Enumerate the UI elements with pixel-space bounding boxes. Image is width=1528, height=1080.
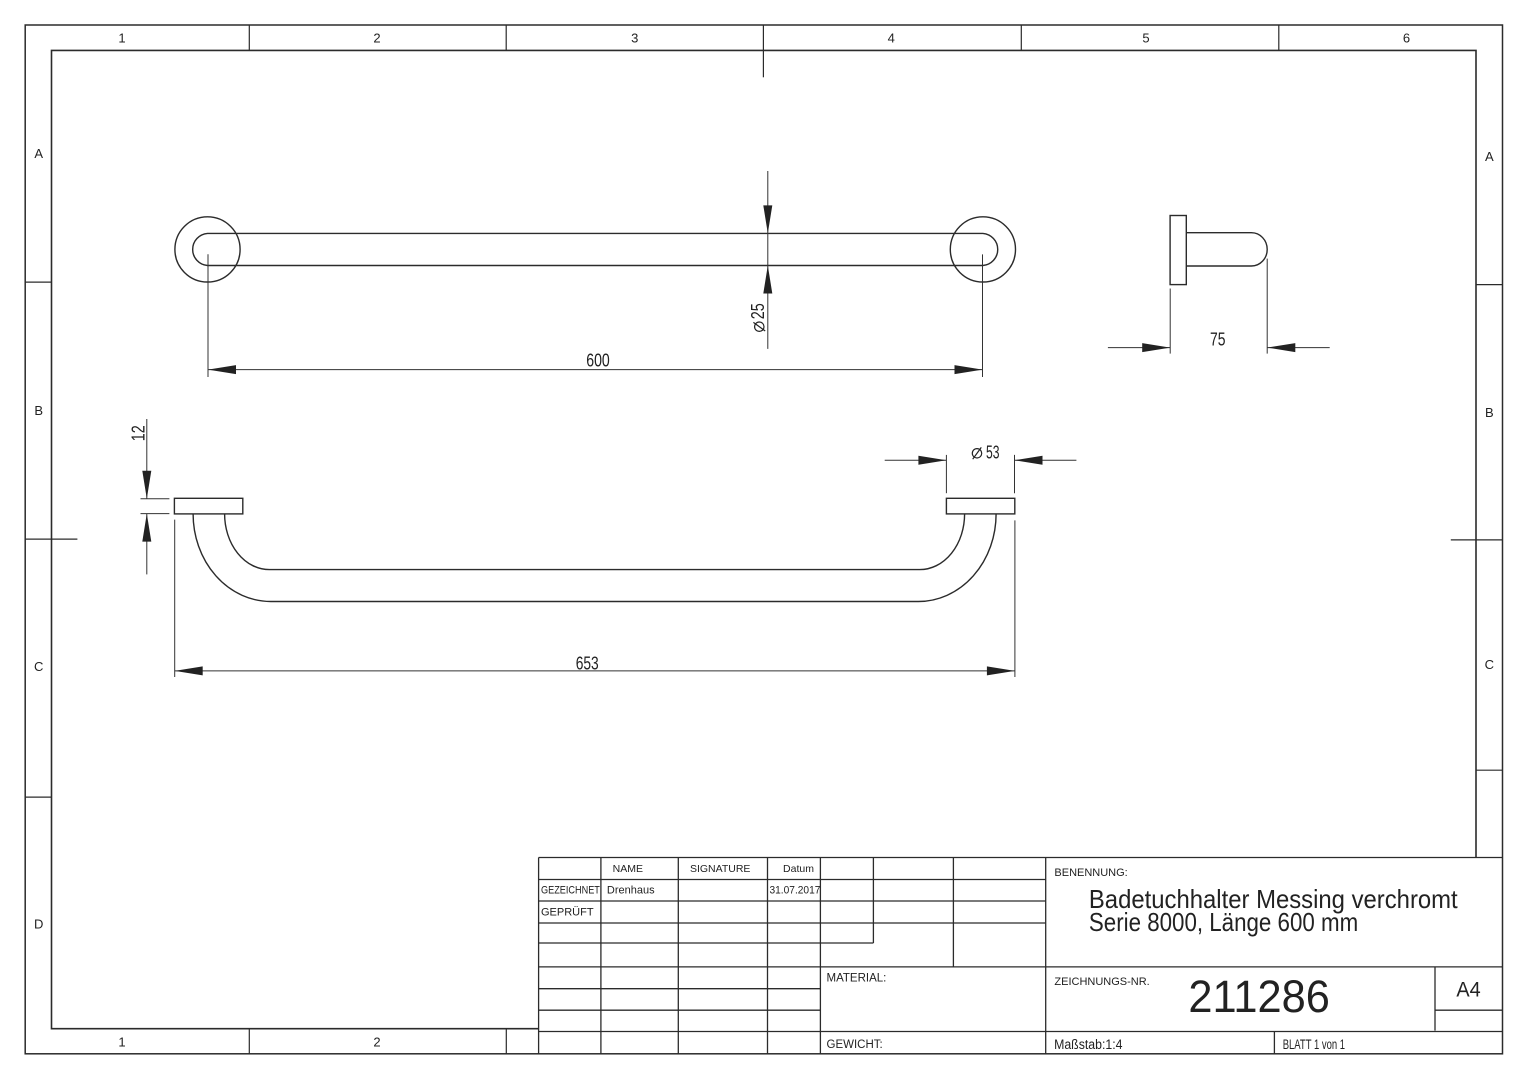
svg-text:D: D [34,917,43,932]
svg-text:BLATT 1 von 1: BLATT 1 von 1 [1283,1037,1345,1052]
svg-text:53: 53 [986,442,1000,462]
svg-text:A4: A4 [1456,978,1481,1001]
svg-text:6: 6 [1403,30,1410,45]
svg-text:A: A [1485,149,1494,164]
svg-text:31.07.2017: 31.07.2017 [770,884,821,896]
svg-text:25: 25 [748,303,768,319]
svg-text:Maßstab:1:4: Maßstab:1:4 [1054,1037,1123,1052]
svg-text:GEWICHT:: GEWICHT: [827,1039,883,1051]
svg-text:B: B [34,403,43,418]
svg-text:ZEICHNUNGS-NR.: ZEICHNUNGS-NR. [1054,976,1149,988]
svg-text:BENENNUNG:: BENENNUNG: [1054,867,1127,879]
svg-text:3: 3 [631,30,638,45]
svg-text:C: C [1485,657,1494,672]
svg-text:SIGNATURE: SIGNATURE [690,863,750,875]
svg-text:Serie 8000, Länge 600 mm: Serie 8000, Länge 600 mm [1089,907,1358,937]
svg-text:Drenhaus: Drenhaus [607,884,655,896]
svg-text:5: 5 [1142,30,1149,45]
svg-text:1: 1 [118,1035,125,1050]
svg-text:653: 653 [576,654,599,674]
svg-text:2: 2 [373,30,380,45]
svg-text:GEPRÜFT: GEPRÜFT [541,906,594,918]
svg-text:2: 2 [373,1035,380,1050]
svg-text:1: 1 [118,30,125,45]
svg-text:75: 75 [1210,330,1226,350]
svg-text:MATERIAL:: MATERIAL: [827,973,887,985]
svg-text:211286: 211286 [1188,971,1330,1022]
svg-text:B: B [1485,405,1494,420]
svg-text:600: 600 [586,350,610,370]
svg-text:GEZEICHNET: GEZEICHNET [541,884,600,896]
svg-text:C: C [34,659,43,674]
svg-text:A: A [34,146,43,161]
svg-text:12: 12 [129,425,149,441]
svg-text:4: 4 [888,30,895,45]
svg-text:Datum: Datum [783,863,814,875]
svg-text:NAME: NAME [613,863,643,875]
